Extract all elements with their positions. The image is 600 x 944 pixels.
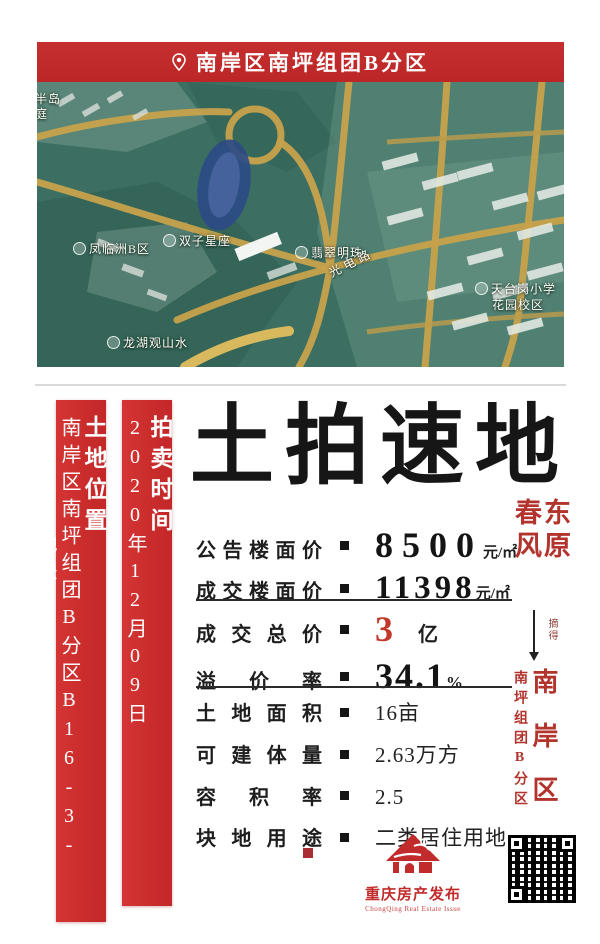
row-value-group: 34.1% xyxy=(375,655,463,697)
row-label: 溢价率 xyxy=(196,665,322,694)
map-label-shuangzi: 双子星座 xyxy=(163,232,231,249)
plot-ratio-row: 容积率 2.5 xyxy=(196,781,526,810)
district-name-large: 南岸区 xyxy=(528,668,558,836)
buyer-name-col2: 春风 xyxy=(511,498,540,614)
announced-floor-price-row: 公告楼面价 8500元/㎡ xyxy=(196,524,526,566)
arrow-down-icon xyxy=(528,610,540,666)
row-label: 土地面积 xyxy=(196,697,322,726)
poi-badge-icon xyxy=(295,246,308,259)
auction-time-value: 2020年12月09日 xyxy=(123,417,147,906)
acquired-note: 摘得 xyxy=(544,610,559,666)
row-value: 16亩 xyxy=(375,701,420,725)
square-bullet-icon xyxy=(340,750,349,759)
auction-time-title: 拍卖时间 xyxy=(147,415,172,906)
row-label: 容积率 xyxy=(196,781,322,810)
land-location-value: 南岸区南坪组团B分区B16-3-1/05地块 xyxy=(33,417,81,922)
map-label-text: 天台岗小学 xyxy=(491,280,556,297)
map-label-text: 庭 xyxy=(37,105,48,122)
row-unit: 亿 xyxy=(418,624,438,646)
row-label: 成交总价 xyxy=(196,618,322,647)
map-label-longhu: 龙湖观山水 xyxy=(107,334,188,351)
publisher-name: 重庆房产发布 xyxy=(348,883,478,904)
map-label-text: 龙湖观山水 xyxy=(123,334,188,351)
row-value: 2.63万方 xyxy=(375,743,460,767)
map-label-text: 双子星座 xyxy=(179,232,231,249)
qr-finder-icon xyxy=(559,835,576,852)
square-bullet-icon xyxy=(340,708,349,717)
location-pin-icon xyxy=(172,53,186,71)
qr-code-pattern xyxy=(508,835,576,903)
row-label: 可建体量 xyxy=(196,739,322,768)
land-location-bar: 土地位置 南岸区南坪组团B分区B16-3-1/05地块 xyxy=(56,400,106,922)
satellite-map: 半岛 庭 凤临洲B区 双子星座 翡翠明珠 光电路 天台岗小学 xyxy=(37,82,564,367)
square-bullet-icon xyxy=(340,791,349,800)
row-value-group: 3亿 xyxy=(375,608,438,650)
section-divider xyxy=(35,384,566,386)
square-bullet-icon xyxy=(340,584,349,593)
map-header-banner: 南岸区南坪组团B分区 xyxy=(37,42,564,82)
square-bullet-icon xyxy=(340,625,349,634)
poi-badge-icon xyxy=(163,234,176,247)
acquired-arrow-group: 摘得 xyxy=(528,610,559,666)
map-label-school-line2: 花园校区 xyxy=(492,296,544,313)
buildable-volume-row: 可建体量 2.63万方 xyxy=(196,739,526,769)
row-value-group: 16亩 xyxy=(375,697,420,727)
poi-badge-icon xyxy=(73,242,86,255)
qr-code xyxy=(505,832,579,906)
map-header-title: 南岸区南坪组团B分区 xyxy=(196,47,429,77)
qr-finder-icon xyxy=(508,886,525,903)
publisher-brand: 重庆房产发布 ChongQing Real Estate Issue xyxy=(348,833,478,913)
map-section: 南岸区南坪组团B分区 xyxy=(37,42,564,367)
district-name-small: 南坪组团B分区 xyxy=(510,670,528,836)
district-vertical: 南岸区 南坪组团B分区 xyxy=(510,668,558,836)
rule-divider xyxy=(196,599,512,601)
map-label-fenglinzhou: 凤临洲B区 xyxy=(73,240,150,257)
row-label: 公告楼面价 xyxy=(196,534,322,563)
row-value: 8500 xyxy=(375,525,483,565)
poi-badge-icon xyxy=(475,282,488,295)
price-section: 公告楼面价 8500元/㎡ 成交楼面价 11398元/㎡ xyxy=(196,524,526,611)
poi-badge-icon xyxy=(107,336,120,349)
land-location-title: 土地位置 xyxy=(81,415,106,922)
row-value-group: 2.63万方 xyxy=(375,739,460,769)
row-value: 2.5 xyxy=(375,785,404,809)
deal-floor-price-row: 成交楼面价 11398元/㎡ xyxy=(196,570,526,607)
premium-rate-row: 溢价率 34.1% xyxy=(196,655,526,697)
buyer-name-col1: 东原 xyxy=(540,498,569,614)
row-value-group: 11398元/㎡ xyxy=(375,570,510,607)
page-title: 土拍速地 xyxy=(190,396,570,499)
publisher-name-en: ChongQing Real Estate Issue xyxy=(348,905,478,913)
row-value-group: 2.5 xyxy=(375,785,404,810)
row-value: 3 xyxy=(375,609,402,649)
satellite-map-image xyxy=(37,82,564,367)
square-bullet-icon xyxy=(340,672,349,681)
land-area-row: 土地面积 16亩 xyxy=(196,697,526,727)
row-label: 块地用途 xyxy=(196,822,322,851)
house-roof-logo-icon xyxy=(384,833,442,877)
map-label-text: 凤临洲B区 xyxy=(89,240,150,257)
map-label-partial-bottom: 庭 xyxy=(37,105,48,122)
poster-page: 南岸区南坪组团B分区 xyxy=(0,0,600,944)
rule-divider xyxy=(196,686,512,688)
total-price-row: 成交总价 3亿 xyxy=(196,608,526,650)
buyer-name-vertical: 东原 春风 xyxy=(511,498,569,614)
map-label-text: 花园校区 xyxy=(492,296,544,313)
red-square-bullet-icon xyxy=(303,848,313,858)
auction-time-bar: 拍卖时间 2020年12月09日 xyxy=(122,400,172,906)
row-unit: % xyxy=(446,673,463,692)
row-value: 34.1 xyxy=(375,656,446,696)
square-bullet-icon xyxy=(340,541,349,550)
map-label-school-line1: 天台岗小学 xyxy=(475,280,556,297)
row-value-group: 8500元/㎡ xyxy=(375,524,517,566)
qr-finder-icon xyxy=(508,835,525,852)
